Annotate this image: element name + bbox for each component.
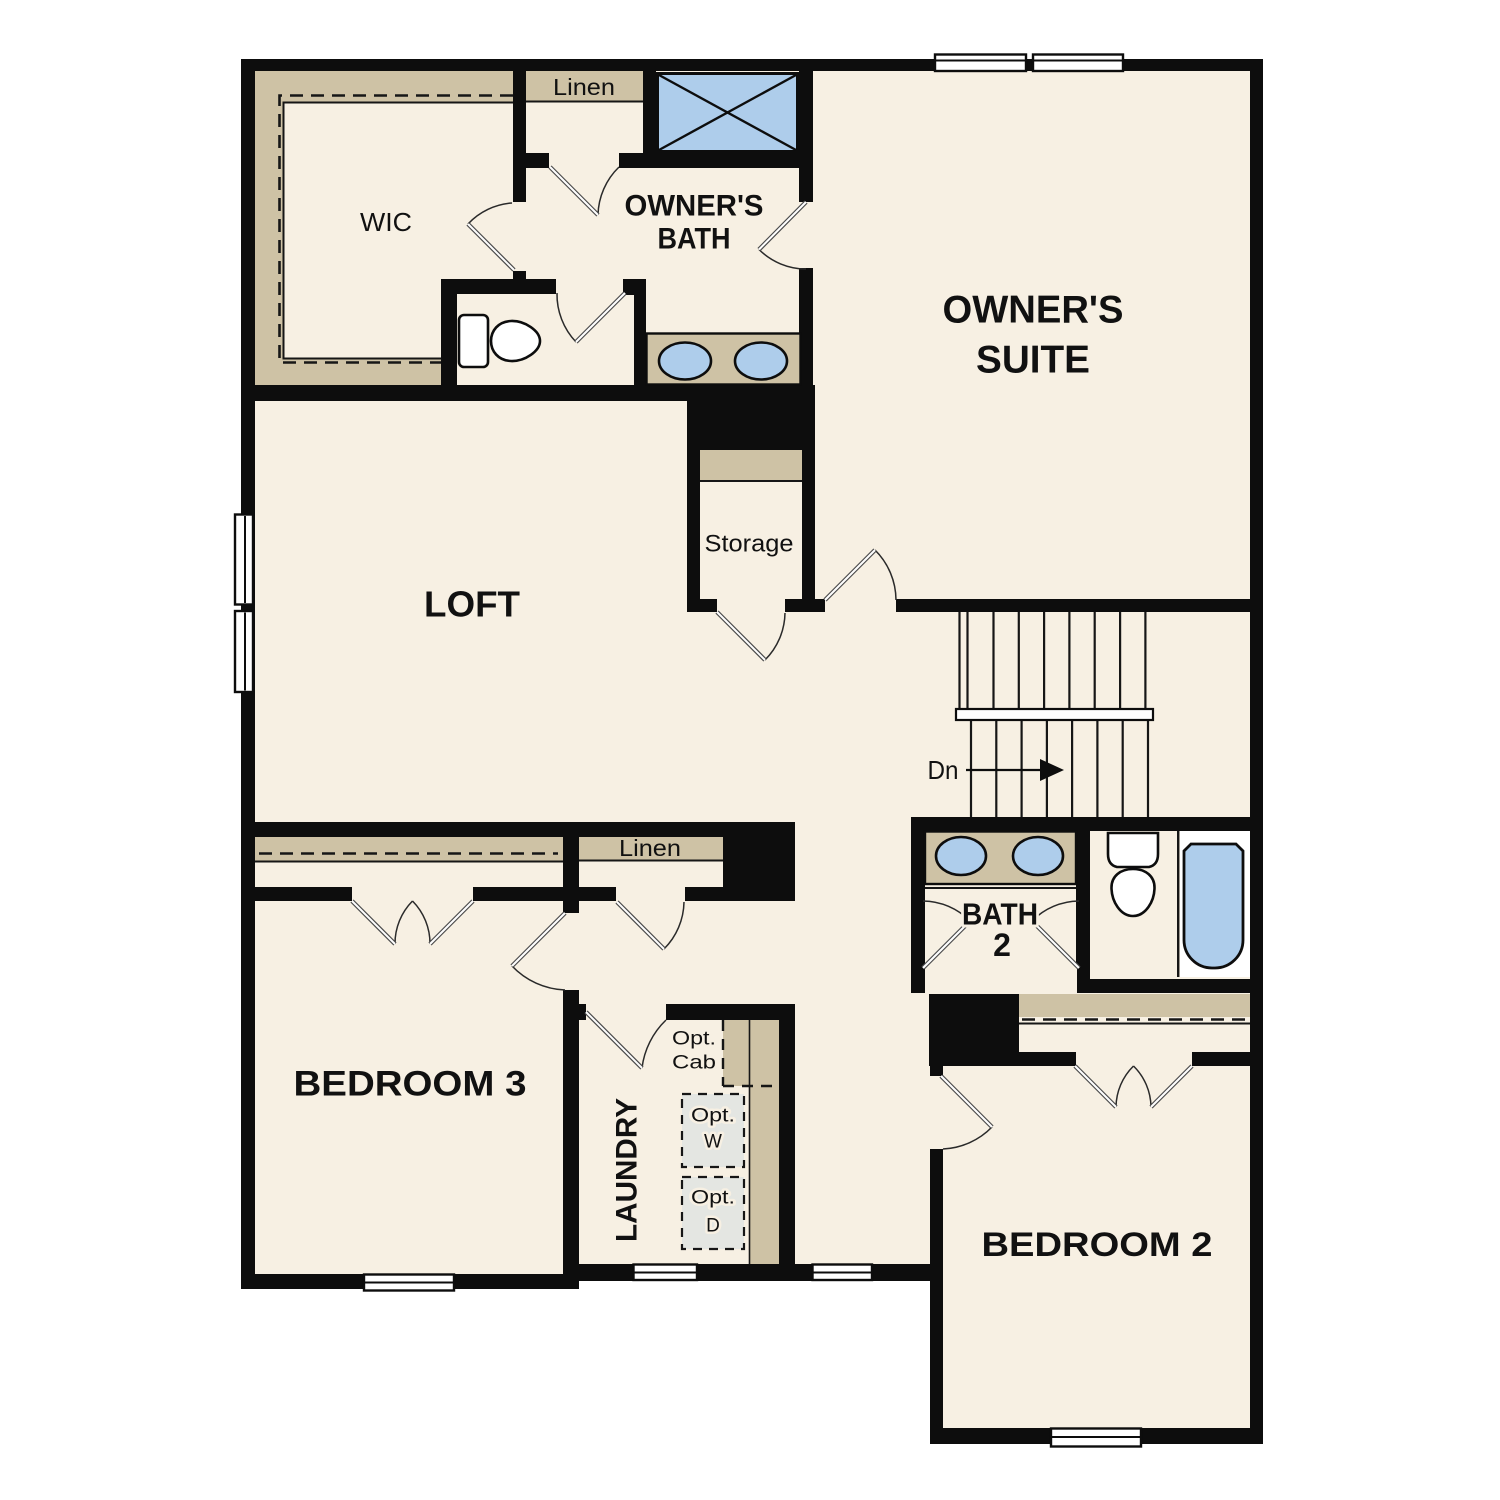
- svg-text:WIC: WIC: [360, 207, 412, 237]
- svg-text:Opt.: Opt.: [672, 1029, 716, 1050]
- svg-text:BATH: BATH: [658, 223, 731, 256]
- svg-text:SUITE: SUITE: [976, 339, 1090, 382]
- svg-text:D: D: [706, 1216, 720, 1237]
- svg-text:BEDROOM 3: BEDROOM 3: [294, 1065, 527, 1104]
- svg-text:Opt.: Opt.: [691, 1106, 735, 1127]
- svg-text:Linen: Linen: [553, 74, 615, 100]
- svg-text:Storage: Storage: [705, 531, 794, 558]
- svg-text:2: 2: [993, 927, 1011, 963]
- svg-text:Dn: Dn: [928, 755, 959, 785]
- svg-text:Linen: Linen: [619, 835, 681, 861]
- svg-text:OWNER'S: OWNER'S: [625, 190, 764, 223]
- svg-text:BEDROOM 2: BEDROOM 2: [982, 1226, 1213, 1264]
- svg-text:W: W: [704, 1132, 722, 1153]
- svg-text:LAUNDRY: LAUNDRY: [611, 1098, 644, 1242]
- svg-text:Opt.: Opt.: [691, 1188, 735, 1209]
- svg-text:Cab: Cab: [672, 1053, 716, 1074]
- svg-text:LOFT: LOFT: [424, 584, 520, 625]
- svg-text:OWNER'S: OWNER'S: [943, 289, 1124, 332]
